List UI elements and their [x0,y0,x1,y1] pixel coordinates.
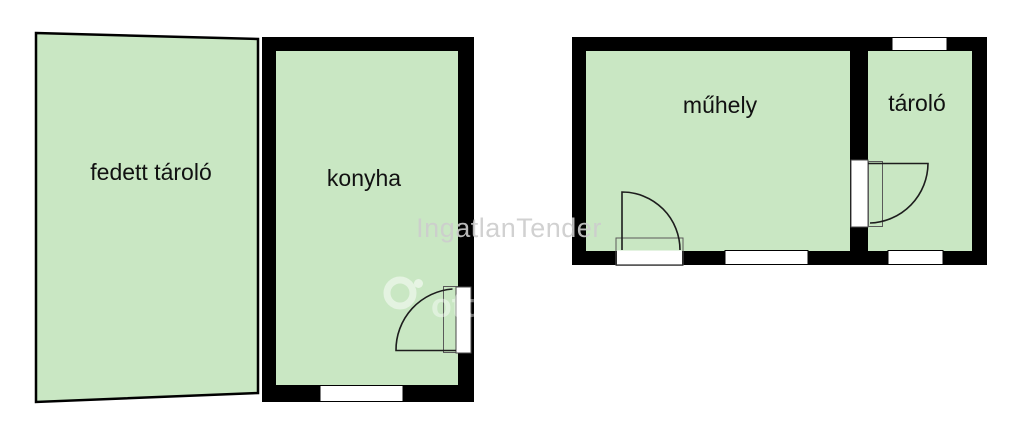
tarolo-top-window [892,38,947,51]
tarolo-door-leaf [851,160,868,227]
watermark-text: IngatlanTender [416,213,602,243]
room-label-fedett-tarolo: fedett tároló [90,159,211,185]
floor-plan: fedett tároló konyha műhely tároló Ingat… [0,0,1024,448]
konyha-bottom-window [320,386,403,402]
room-label-muhely: műhely [683,92,758,118]
watermark-logo-text: otth [431,287,495,325]
muhely-door-opening [617,251,682,265]
muhely-bottom-window [725,251,808,265]
watermark-logo-dot [414,279,423,288]
right-building: műhely tároló [572,37,987,266]
left-building: fedett tároló konyha [36,33,474,402]
room-label-konyha: konyha [327,165,401,191]
tarolo-bottom-window [888,251,943,265]
room-fedett-tarolo-floor [36,33,258,402]
room-label-tarolo: tároló [888,90,946,116]
room-muhely-floor [586,51,850,251]
